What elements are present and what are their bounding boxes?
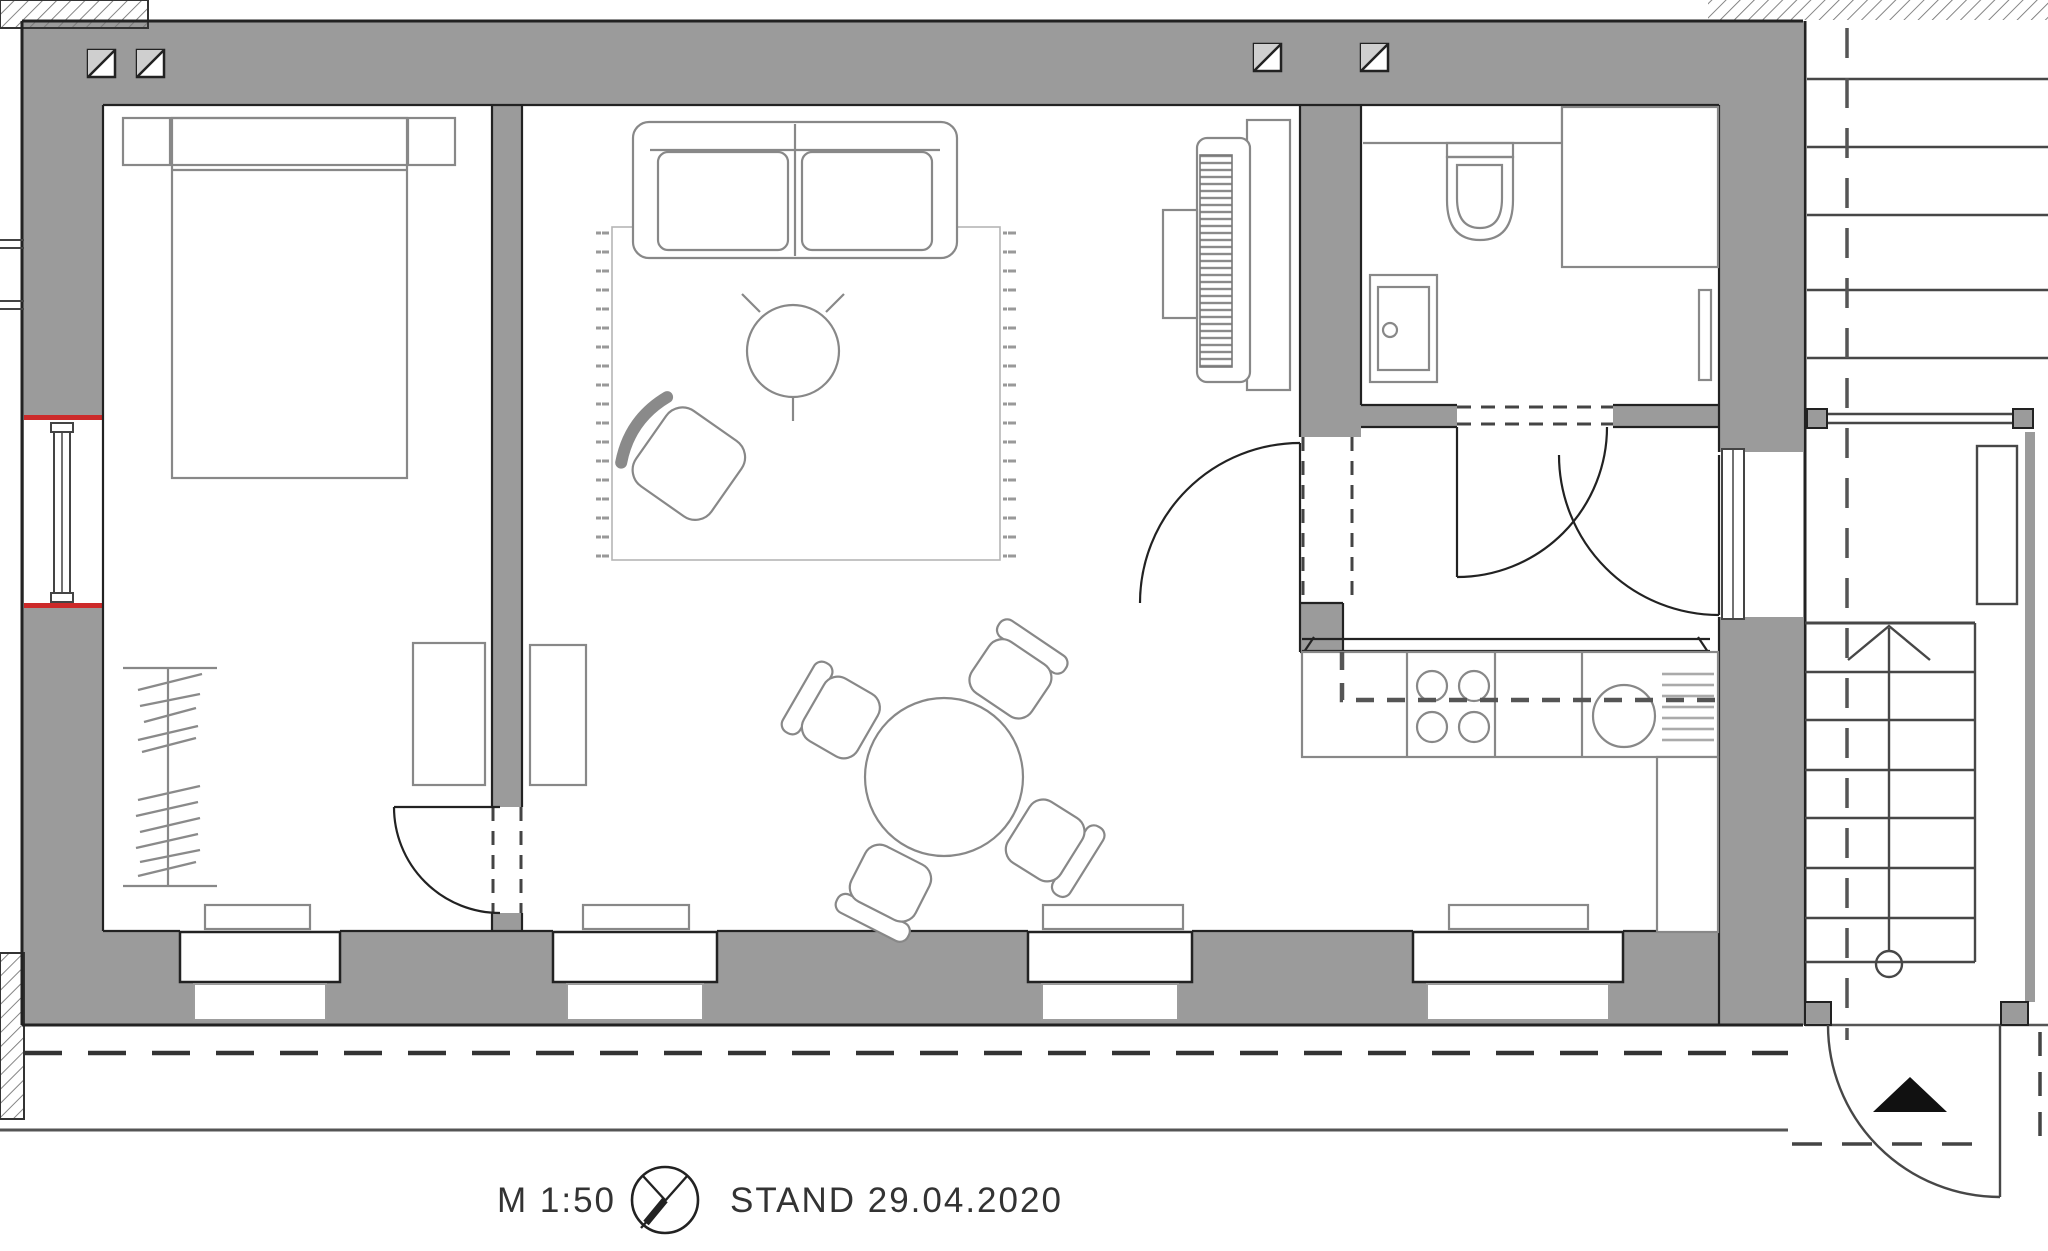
entrance-triangle-icon	[1873, 1077, 1947, 1112]
dining-table	[865, 698, 1023, 856]
radiator	[583, 905, 689, 929]
vent-square-icon	[137, 50, 164, 77]
vent-square-icon	[1361, 44, 1388, 71]
drainer	[1662, 668, 1714, 746]
radiator	[1449, 905, 1588, 929]
kitchen	[1302, 637, 1718, 932]
window-reveal-red-top	[24, 415, 102, 420]
floor-plan: M 1:50 STAND 29.04.2020	[0, 0, 2048, 1251]
vent-square-icon	[88, 50, 115, 77]
dining-set	[778, 616, 1107, 945]
floor-plan-drawing	[0, 0, 2048, 1251]
clothes-rail	[123, 668, 217, 886]
opening-bedroom-door	[490, 807, 524, 913]
window-dining	[1028, 932, 1192, 1020]
bathroom-radiator	[1699, 290, 1711, 380]
stairwell	[1792, 28, 2048, 1197]
hatch-top-right	[1708, 0, 2048, 20]
sofa	[633, 122, 957, 258]
stair-entrance	[1792, 1002, 2048, 1197]
window-reveal-red-bottom	[24, 603, 102, 608]
living-room	[530, 120, 1290, 945]
door-entrance	[1559, 455, 1719, 615]
north-compass-icon	[625, 1162, 705, 1242]
tv-sideboard	[1163, 120, 1290, 390]
stair-railing	[1807, 409, 2033, 428]
scale-label: M 1:50	[497, 1181, 616, 1221]
shower	[1562, 107, 1718, 267]
sideboard	[1247, 120, 1290, 390]
radiator	[205, 905, 310, 929]
armchair	[609, 389, 753, 528]
wardrobe	[413, 643, 485, 785]
wall-stub-kitchen	[1300, 603, 1343, 652]
stair-wall-strip	[2025, 432, 2035, 1002]
window-kitchen	[1413, 932, 1623, 1020]
door-bathroom	[1457, 407, 1613, 577]
window-living-left	[553, 932, 717, 1020]
entrance-door-frame	[1719, 449, 1803, 619]
washbasin	[1370, 275, 1437, 382]
vent-square-icon	[1254, 44, 1281, 71]
wall-living-hall	[1300, 105, 1361, 437]
radiator	[1043, 905, 1183, 929]
handrail	[1977, 446, 2017, 604]
status-label: STAND 29.04.2020	[730, 1181, 1063, 1221]
hatch-bottom-left	[0, 953, 24, 1119]
kitchen-counter	[1302, 652, 1718, 757]
bed	[123, 118, 455, 478]
left-annotation-lines	[0, 240, 24, 309]
stair-direction-arrow	[1848, 626, 1930, 977]
stair-upper-flight	[1807, 79, 2048, 358]
window-bedroom-left	[24, 415, 102, 608]
window-bedroom	[180, 932, 340, 1020]
bathroom	[1363, 107, 1718, 382]
shelf	[1163, 210, 1197, 318]
bedroom	[123, 118, 485, 886]
coffee-table	[742, 294, 844, 421]
radiator-panel	[1200, 155, 1232, 367]
toilet	[1447, 143, 1513, 240]
shelf-unit	[530, 645, 586, 785]
kitchen-counter-return	[1657, 757, 1718, 932]
